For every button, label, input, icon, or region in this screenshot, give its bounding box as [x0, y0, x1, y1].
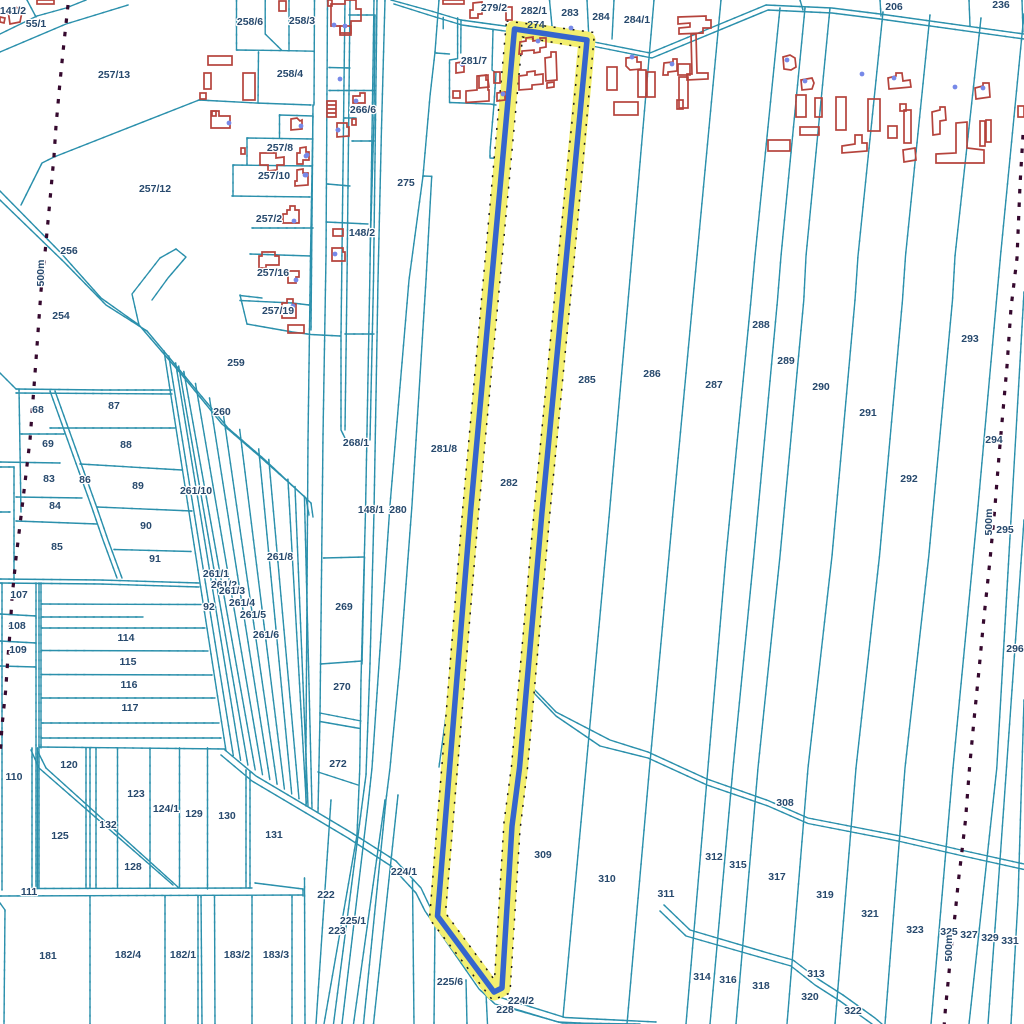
svg-text:327: 327: [960, 929, 978, 941]
svg-text:311: 311: [658, 888, 675, 900]
svg-text:282/1: 282/1: [521, 5, 547, 17]
svg-text:254: 254: [52, 310, 70, 322]
svg-text:132: 132: [99, 819, 117, 831]
svg-text:283: 283: [561, 7, 579, 19]
svg-text:281/7: 281/7: [461, 55, 487, 67]
svg-text:331: 331: [1001, 935, 1019, 947]
svg-text:309: 309: [534, 849, 552, 861]
svg-text:148/1: 148/1: [358, 504, 384, 516]
svg-text:228: 228: [496, 1004, 514, 1016]
svg-text:320: 320: [801, 991, 819, 1003]
svg-text:269: 269: [335, 601, 353, 613]
svg-text:183/2: 183/2: [224, 949, 250, 961]
svg-text:291: 291: [859, 407, 877, 419]
svg-text:288: 288: [752, 319, 770, 331]
svg-text:261/3: 261/3: [219, 585, 245, 597]
svg-text:261/8: 261/8: [267, 551, 293, 563]
svg-text:280: 280: [389, 504, 407, 516]
svg-text:313: 313: [807, 968, 825, 980]
svg-text:224/1: 224/1: [391, 866, 417, 878]
svg-text:91: 91: [149, 553, 161, 565]
svg-text:89: 89: [132, 480, 144, 492]
svg-text:286: 286: [643, 368, 661, 380]
svg-text:88: 88: [120, 439, 132, 451]
svg-text:257/12: 257/12: [139, 183, 171, 195]
svg-text:292: 292: [900, 473, 918, 485]
svg-text:282: 282: [500, 477, 518, 489]
svg-text:114: 114: [118, 632, 135, 644]
svg-text:259: 259: [227, 357, 245, 369]
svg-text:285: 285: [578, 374, 596, 386]
svg-text:261/5: 261/5: [240, 609, 266, 621]
svg-text:314: 314: [693, 971, 711, 983]
svg-text:319: 319: [816, 889, 834, 901]
svg-text:318: 318: [752, 980, 770, 992]
svg-text:109: 109: [9, 644, 27, 656]
svg-text:222: 222: [317, 889, 335, 901]
svg-text:123: 123: [127, 788, 145, 800]
svg-text:270: 270: [333, 681, 351, 693]
svg-text:266/6: 266/6: [350, 104, 376, 116]
svg-text:500m: 500m: [983, 509, 995, 536]
svg-text:69: 69: [42, 438, 54, 450]
svg-text:236: 236: [992, 0, 1010, 11]
svg-text:90: 90: [140, 520, 152, 532]
svg-text:296: 296: [1006, 643, 1024, 655]
svg-text:86: 86: [79, 474, 91, 486]
svg-text:258/4: 258/4: [277, 68, 303, 80]
svg-text:141/2: 141/2: [0, 5, 26, 17]
svg-text:257/13: 257/13: [98, 69, 130, 81]
svg-text:110: 110: [6, 771, 23, 783]
svg-text:124/1: 124/1: [153, 803, 179, 815]
svg-text:130: 130: [218, 810, 236, 822]
svg-text:120: 120: [60, 759, 78, 771]
svg-text:182/1: 182/1: [170, 949, 196, 961]
svg-text:274: 274: [527, 19, 545, 31]
svg-text:294: 294: [985, 434, 1003, 446]
svg-text:223: 223: [328, 925, 346, 937]
svg-text:225/6: 225/6: [437, 976, 463, 988]
svg-text:284/1: 284/1: [624, 14, 650, 26]
svg-text:500m: 500m: [35, 260, 47, 287]
svg-text:261/4: 261/4: [229, 597, 255, 609]
svg-text:316: 316: [719, 974, 737, 986]
svg-text:68: 68: [32, 404, 44, 416]
svg-text:181: 181: [39, 950, 57, 962]
svg-text:257/16: 257/16: [257, 267, 289, 279]
svg-text:272: 272: [329, 758, 347, 770]
svg-text:312: 312: [705, 851, 723, 863]
svg-text:308: 308: [776, 797, 794, 809]
svg-text:268/1: 268/1: [343, 437, 369, 449]
svg-text:107: 107: [10, 589, 28, 601]
svg-text:260: 260: [213, 406, 231, 418]
svg-text:55/1: 55/1: [26, 18, 47, 30]
svg-text:317: 317: [768, 871, 786, 883]
svg-text:206: 206: [885, 1, 903, 13]
svg-text:293: 293: [961, 333, 979, 345]
svg-text:258/3: 258/3: [289, 15, 315, 27]
svg-text:310: 310: [598, 873, 616, 885]
svg-text:257/2: 257/2: [256, 213, 282, 225]
svg-text:261/6: 261/6: [253, 629, 279, 641]
svg-text:287: 287: [705, 379, 723, 391]
svg-text:261/10: 261/10: [180, 485, 212, 497]
svg-text:85: 85: [51, 541, 63, 553]
svg-text:116: 116: [121, 679, 138, 691]
svg-text:323: 323: [906, 924, 924, 936]
svg-text:284: 284: [592, 11, 610, 23]
svg-text:315: 315: [729, 859, 747, 871]
svg-text:322: 322: [844, 1005, 862, 1017]
svg-text:148/2: 148/2: [349, 227, 375, 239]
svg-text:281/8: 281/8: [431, 443, 457, 455]
svg-text:258/6: 258/6: [237, 16, 263, 28]
svg-text:128: 128: [124, 861, 142, 873]
svg-text:183/3: 183/3: [263, 949, 289, 961]
svg-text:275: 275: [397, 177, 415, 189]
svg-text:279/2: 279/2: [481, 2, 507, 14]
svg-text:92: 92: [203, 601, 215, 613]
svg-text:83: 83: [43, 473, 55, 485]
svg-text:108: 108: [8, 620, 26, 632]
svg-text:111: 111: [21, 886, 38, 898]
svg-text:500m: 500m: [943, 935, 955, 962]
svg-text:256: 256: [60, 245, 78, 257]
svg-text:290: 290: [812, 381, 830, 393]
svg-text:131: 131: [265, 829, 283, 841]
svg-text:115: 115: [120, 656, 137, 668]
svg-text:117: 117: [122, 702, 139, 714]
svg-text:257/19: 257/19: [262, 305, 294, 317]
svg-text:84: 84: [49, 500, 61, 512]
svg-text:129: 129: [185, 808, 203, 820]
svg-text:321: 321: [861, 908, 879, 920]
svg-text:87: 87: [108, 400, 120, 412]
svg-text:182/4: 182/4: [115, 949, 141, 961]
svg-text:329: 329: [981, 932, 999, 944]
svg-text:289: 289: [777, 355, 795, 367]
svg-text:295: 295: [996, 524, 1014, 536]
svg-text:125: 125: [51, 830, 69, 842]
svg-text:257/10: 257/10: [258, 170, 290, 182]
svg-text:257/8: 257/8: [267, 142, 293, 154]
